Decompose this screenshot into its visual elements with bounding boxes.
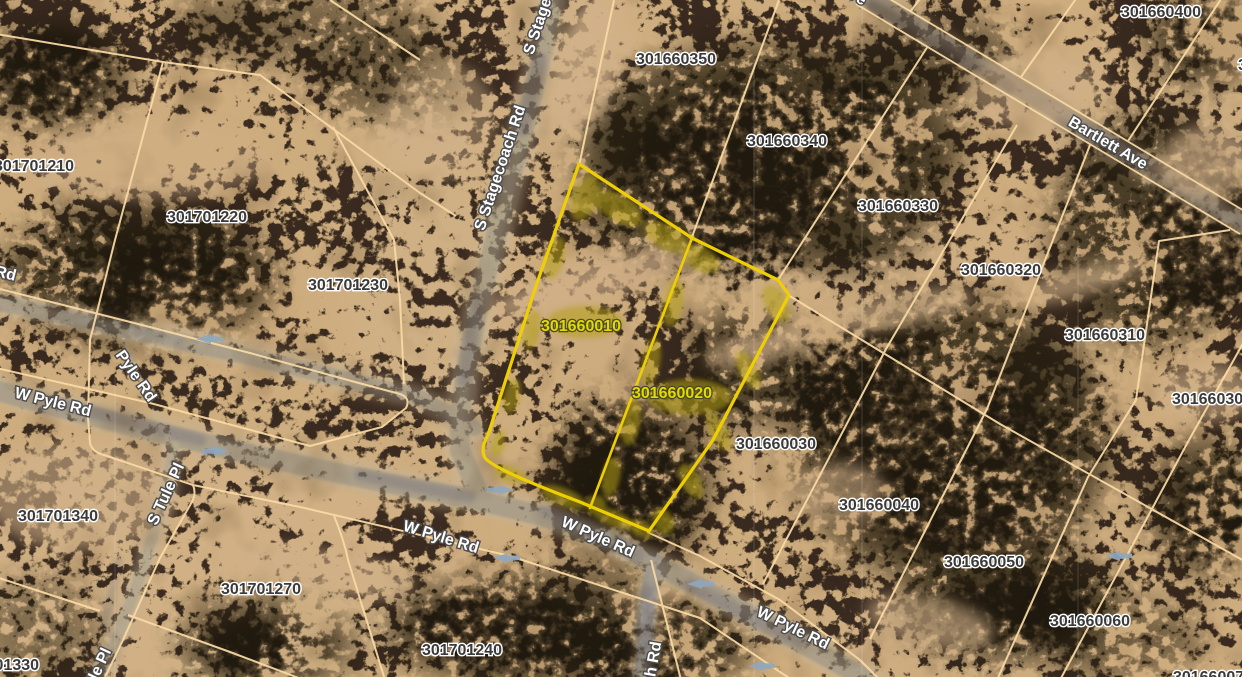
svg-text:301701220: 301701220 xyxy=(167,209,247,226)
svg-text:301660030: 301660030 xyxy=(736,436,816,453)
svg-text:301660400: 301660400 xyxy=(1121,4,1201,21)
svg-text:301660350: 301660350 xyxy=(636,51,716,68)
svg-text:301660060: 301660060 xyxy=(1050,613,1130,630)
svg-text:301701330: 301701330 xyxy=(0,657,39,674)
svg-text:301660320: 301660320 xyxy=(961,262,1041,279)
svg-text:301660070: 301660070 xyxy=(1173,669,1242,677)
svg-text:301701270: 301701270 xyxy=(221,581,301,598)
svg-text:301660040: 301660040 xyxy=(839,497,919,514)
svg-text:301701210: 301701210 xyxy=(0,158,74,175)
svg-text:301660050: 301660050 xyxy=(944,554,1024,571)
svg-text:301701230: 301701230 xyxy=(308,277,388,294)
svg-text:301660390: 301660390 xyxy=(1238,57,1242,74)
svg-text:301660330: 301660330 xyxy=(858,198,938,215)
svg-text:301660300: 301660300 xyxy=(1172,391,1242,408)
svg-text:301660310: 301660310 xyxy=(1065,327,1145,344)
svg-text:301660340: 301660340 xyxy=(747,133,827,150)
svg-text:301701240: 301701240 xyxy=(422,642,502,659)
svg-text:301660010: 301660010 xyxy=(541,318,621,335)
svg-text:301660020: 301660020 xyxy=(632,385,712,402)
svg-text:301701340: 301701340 xyxy=(18,508,98,525)
